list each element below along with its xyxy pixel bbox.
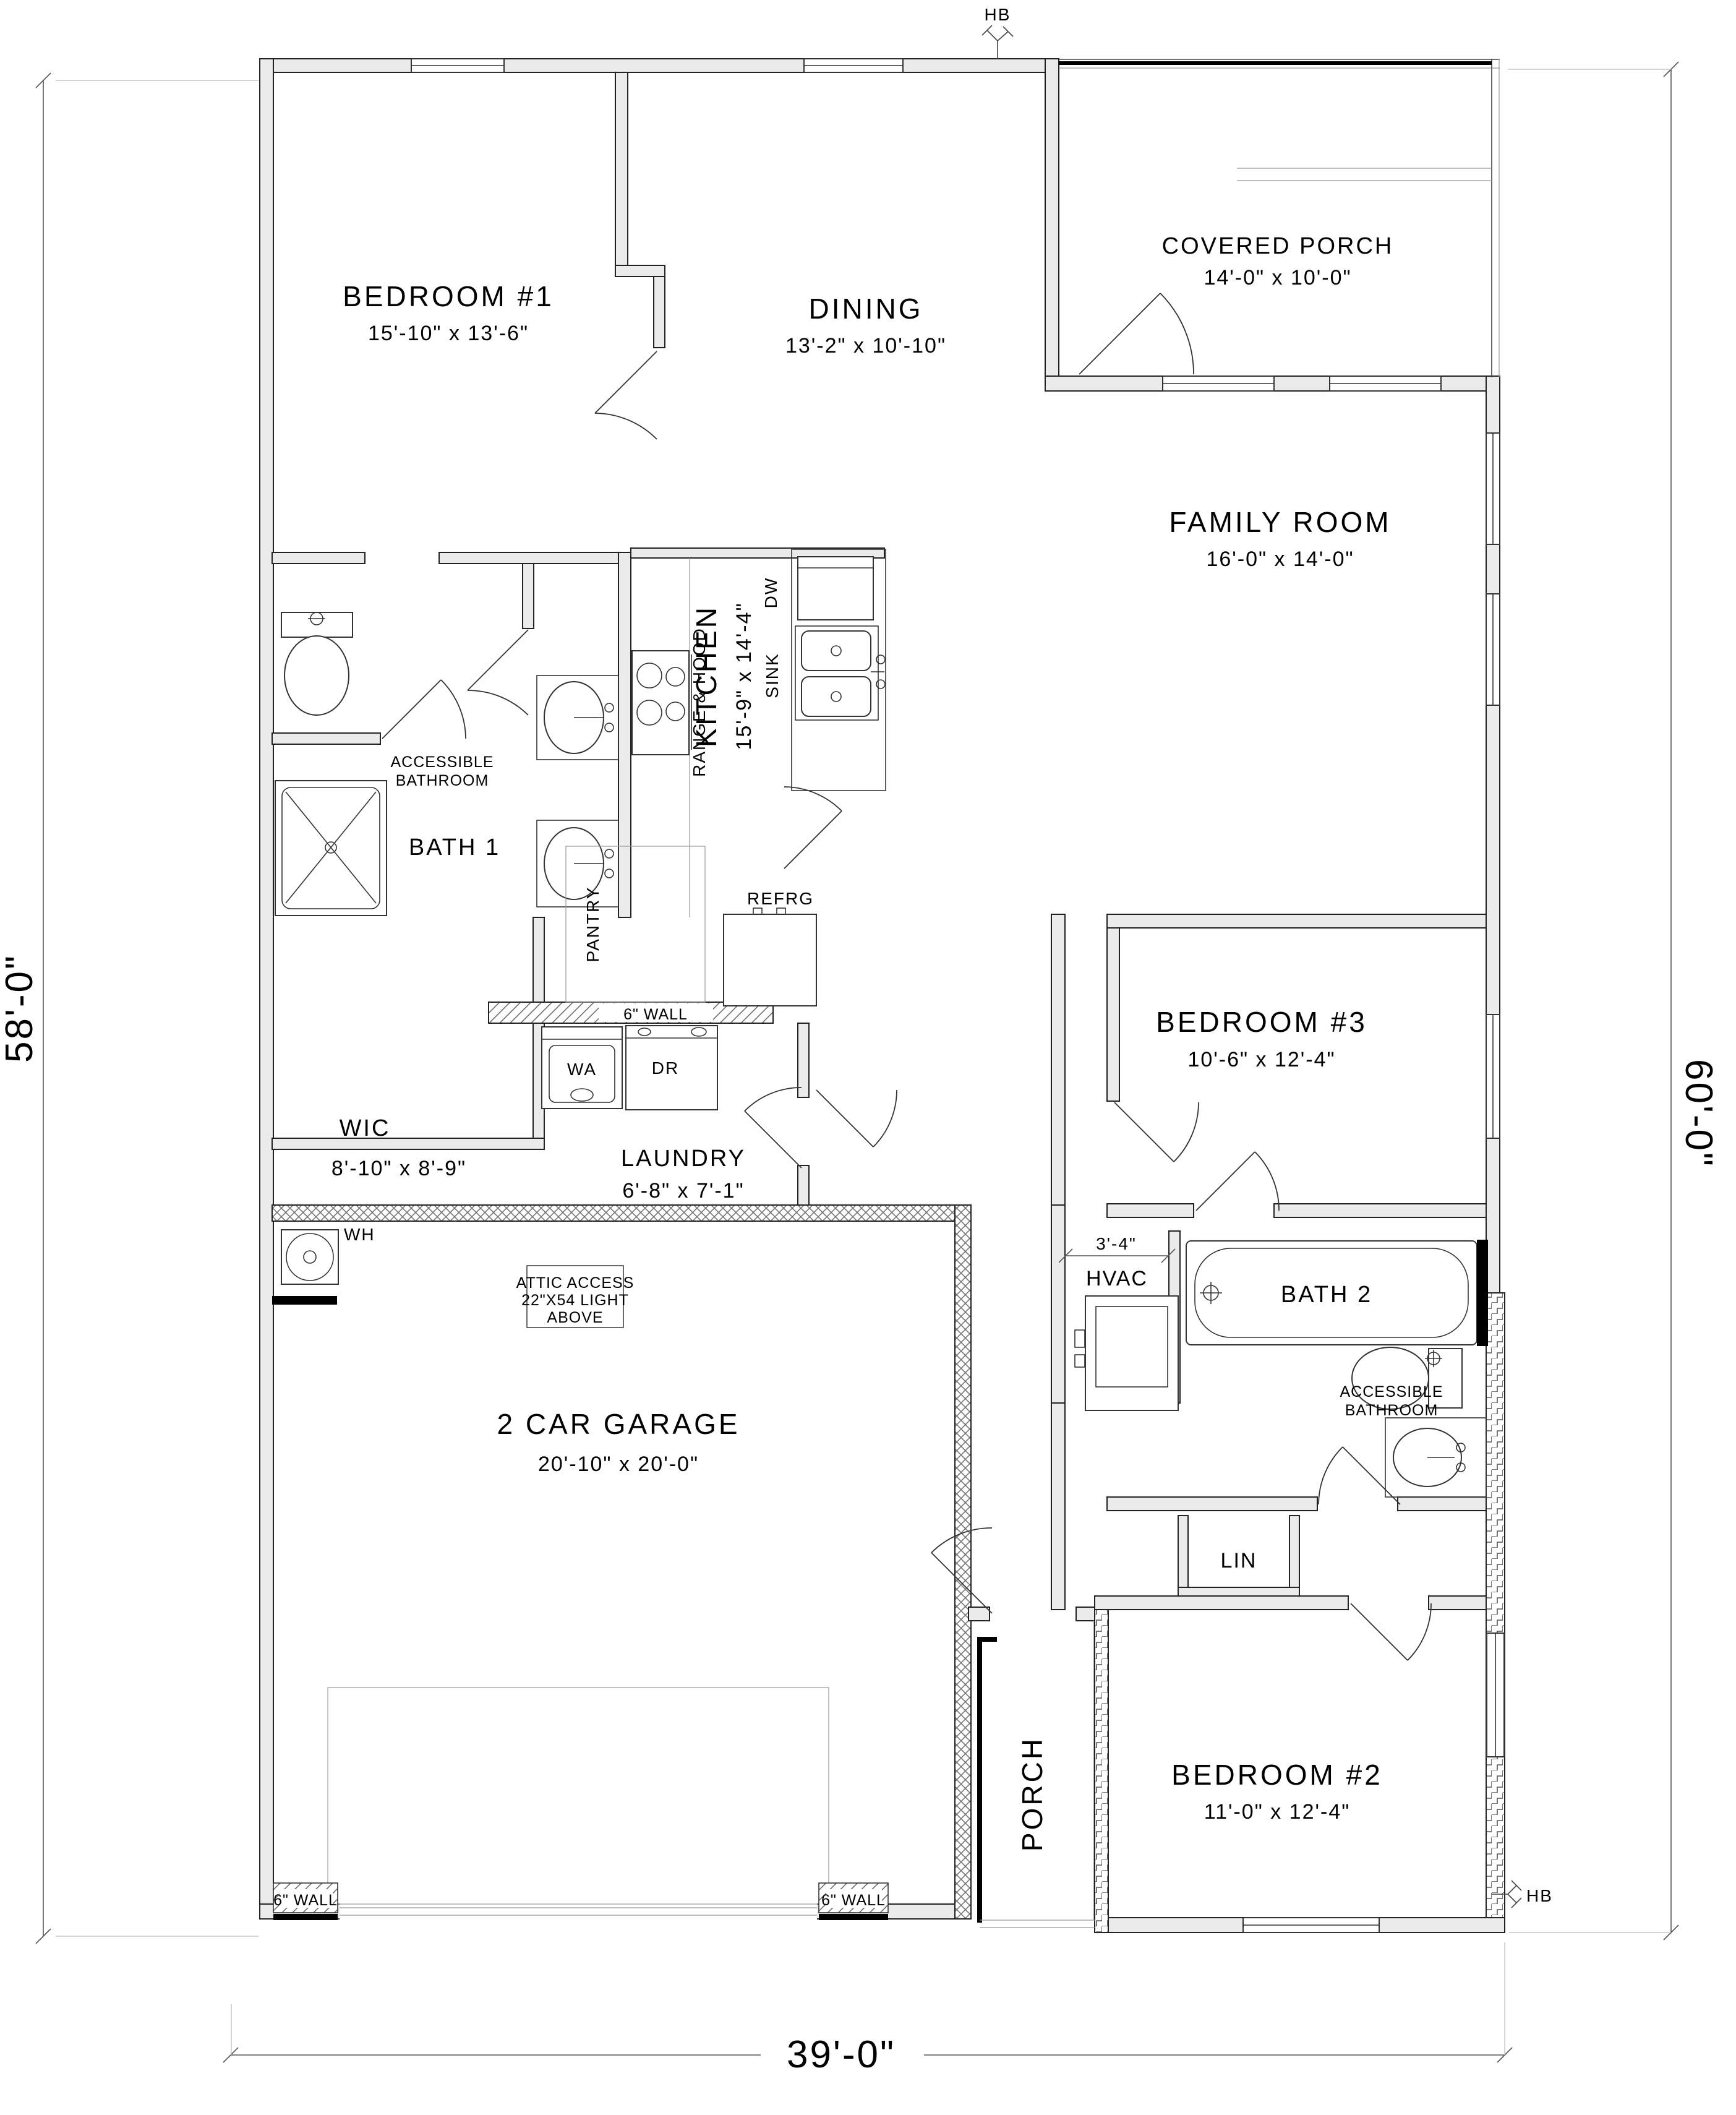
garage-label: 2 CAR GARAGE xyxy=(497,1408,740,1440)
floor-plan-drawing: 58'-0" 60'-0" 39'-0" xyxy=(0,0,1736,2115)
bath2-note-line2: BATHROOM xyxy=(1345,1402,1439,1419)
dining-size: 13'-2" x 10'-10" xyxy=(785,334,946,358)
six-wall-kitchen-label: 6" WALL xyxy=(623,1006,688,1023)
door xyxy=(816,1090,897,1147)
door xyxy=(784,787,842,869)
bedroom2-label: BEDROOM #2 xyxy=(1171,1759,1383,1791)
refrg-label: REFRG xyxy=(747,889,814,908)
porch-label: PORCH xyxy=(1016,1736,1048,1851)
laundry-label: LAUNDRY xyxy=(621,1146,746,1172)
hose-bib-icon xyxy=(982,25,1013,59)
brick-wall-porch xyxy=(1095,1596,1108,1933)
hvac-unit xyxy=(1075,1296,1178,1410)
toilet xyxy=(281,612,353,715)
bath1-note-line1: ACCESSIBLE xyxy=(390,753,494,771)
six-wall-mid-label: 6" WALL xyxy=(821,1892,886,1909)
shower xyxy=(275,781,387,916)
garage-house-wall xyxy=(272,1205,955,1221)
washer-label: WA xyxy=(567,1060,597,1079)
wic-label: WIC xyxy=(340,1115,391,1141)
dim-bottom: 39'-0" xyxy=(787,2033,896,2076)
bedroom1-label: BEDROOM #1 xyxy=(343,280,554,312)
bath2-vanity xyxy=(1385,1418,1486,1497)
laundry-size: 6'-8" x 7'-1" xyxy=(622,1179,744,1203)
window xyxy=(1486,1015,1500,1138)
window xyxy=(1243,1918,1379,1933)
attic-line3: ABOVE xyxy=(547,1309,603,1326)
window xyxy=(411,59,504,72)
dim-right: 60'-0" xyxy=(1677,1059,1720,1168)
lin-label: LIN xyxy=(1221,1549,1257,1572)
covered-porch-size: 14'-0" x 10'-0" xyxy=(1204,266,1351,290)
attic-line2: 22"X54 LIGHT xyxy=(521,1292,629,1309)
kitchen-island xyxy=(792,549,886,791)
wic-size: 8'-10" x 8'-9" xyxy=(331,1157,466,1180)
dim-left: 58'-0" xyxy=(0,954,41,1063)
family-room-size: 16'-0" x 14'-0" xyxy=(1206,547,1354,571)
hb-bottom-label: HB xyxy=(1526,1886,1553,1905)
window xyxy=(1163,376,1274,391)
hvac-dim-label: 3'-4" xyxy=(1096,1234,1137,1253)
bath2-note-line1: ACCESSIBLE xyxy=(1340,1383,1443,1401)
door xyxy=(468,630,528,715)
door xyxy=(1351,1603,1431,1660)
garage-right-wall xyxy=(955,1205,971,1919)
bedroom3-label: BEDROOM #3 xyxy=(1156,1006,1367,1038)
six-wall-left-label: 6" WALL xyxy=(273,1892,338,1909)
attic-line1: ATTIC ACCESS xyxy=(516,1274,635,1292)
window xyxy=(1486,594,1500,705)
hb-top-label: HB xyxy=(985,5,1011,24)
sink-label: SINK xyxy=(763,653,782,698)
covered-porch-label: COVERED PORCH xyxy=(1162,233,1394,259)
garage-door-panel xyxy=(328,1688,829,1904)
hvac-label: HVAC xyxy=(1086,1267,1148,1290)
dimension-lines: 58'-0" 60'-0" 39'-0" xyxy=(0,62,1720,2076)
window xyxy=(1486,433,1500,544)
brick-wall-right xyxy=(1486,1293,1505,1933)
window xyxy=(804,59,903,72)
family-room-label: FAMILY ROOM xyxy=(1169,506,1391,538)
door xyxy=(1114,1102,1199,1162)
bedroom1-size: 15'-10" x 13'-6" xyxy=(368,322,529,345)
porch-beam xyxy=(1059,61,1492,65)
dining-label: DINING xyxy=(809,293,923,325)
range xyxy=(632,651,691,755)
floor-plan-sheet: 58'-0" 60'-0" 39'-0" xyxy=(0,0,1736,2115)
door xyxy=(382,680,466,739)
bath2-label: BATH 2 xyxy=(1281,1282,1372,1308)
window xyxy=(1330,376,1441,391)
garage-size: 20'-10" x 20'-0" xyxy=(538,1452,699,1476)
dryer-label: DR xyxy=(652,1058,679,1078)
labels: HB HB BEDROOM #1 15'-10" x 13'-6" DINING… xyxy=(273,5,1553,1909)
window xyxy=(1487,1633,1504,1757)
wh-label: WH xyxy=(344,1225,375,1244)
bath1-note-line2: BATHROOM xyxy=(396,772,489,789)
door xyxy=(1319,1447,1400,1504)
dishwasher xyxy=(798,557,873,620)
door xyxy=(595,351,657,439)
range-hood-label: RANGE & HOOD xyxy=(690,627,709,777)
bedroom2-size: 11'-0" x 12'-4" xyxy=(1204,1800,1351,1824)
door xyxy=(1079,293,1194,374)
pantry-label: PANTRY xyxy=(583,886,602,963)
bath1-vanity xyxy=(537,676,618,907)
kitchen-size: 15'-9" x 14'-4" xyxy=(732,602,756,750)
door xyxy=(745,1088,802,1168)
bath1-label: BATH 1 xyxy=(409,834,500,860)
porch-edge xyxy=(980,1639,997,1923)
water-heater xyxy=(272,1230,338,1305)
refrigerator xyxy=(724,908,816,1006)
door xyxy=(1196,1152,1279,1211)
bedroom3-size: 10'-6" x 12'-4" xyxy=(1187,1048,1335,1071)
dw-label: DW xyxy=(761,577,780,609)
